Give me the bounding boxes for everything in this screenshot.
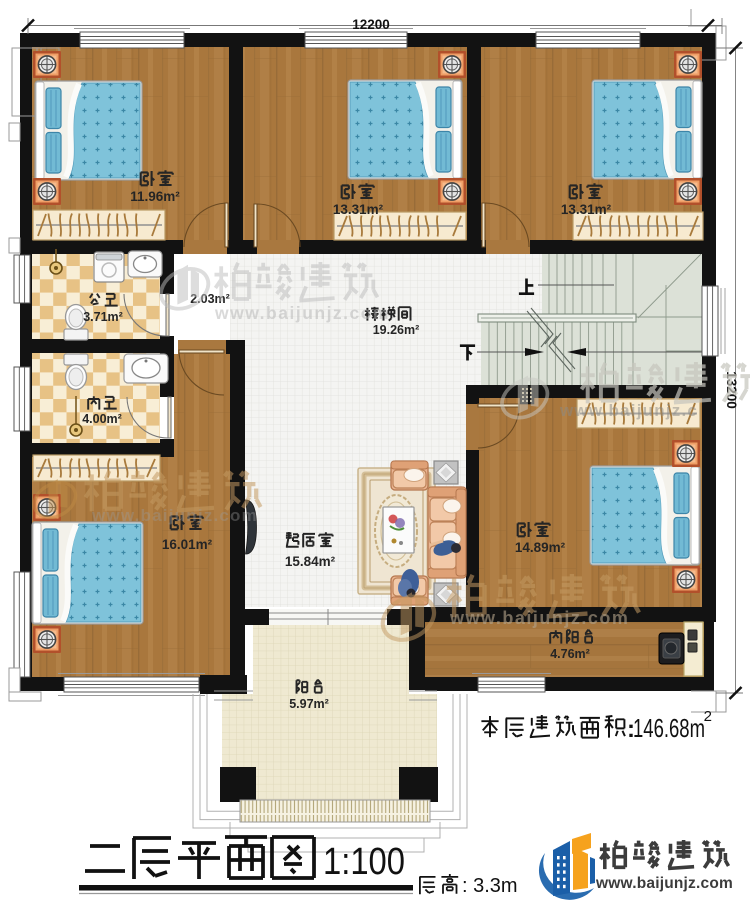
svg-text:16.01m²: 16.01m² (162, 537, 213, 552)
svg-text:14.89m²: 14.89m² (515, 540, 566, 555)
svg-text:1:100: 1:100 (323, 841, 405, 883)
svg-text:15.84m²: 15.84m² (285, 554, 336, 569)
svg-text:4.00m²: 4.00m² (82, 412, 122, 426)
svg-text:www.baijunjz.com: www.baijunjz.com (91, 506, 258, 525)
svg-text:www.baijunjz.com: www.baijunjz.com (214, 303, 390, 323)
svg-text:11.96m²: 11.96m² (130, 189, 180, 204)
svg-text:www.baijunjz.c: www.baijunjz.c (559, 401, 698, 420)
svg-text:146.68m: 146.68m (633, 713, 705, 743)
svg-text:13.31m²: 13.31m² (561, 202, 612, 217)
svg-text:www.baijunjz.com: www.baijunjz.com (595, 875, 733, 892)
svg-text:13.31m²: 13.31m² (333, 202, 384, 217)
svg-text:4.76m²: 4.76m² (550, 647, 590, 661)
svg-text:19.26m²: 19.26m² (373, 323, 420, 337)
svg-text:5.97m²: 5.97m² (289, 697, 329, 711)
svg-text:: 3.3m: : 3.3m (462, 875, 518, 897)
svg-text:www.baijunjz.com: www.baijunjz.com (449, 608, 629, 628)
svg-text:2: 2 (704, 708, 712, 725)
svg-text:3.71m²: 3.71m² (83, 310, 123, 324)
svg-text:12200: 12200 (352, 17, 390, 32)
